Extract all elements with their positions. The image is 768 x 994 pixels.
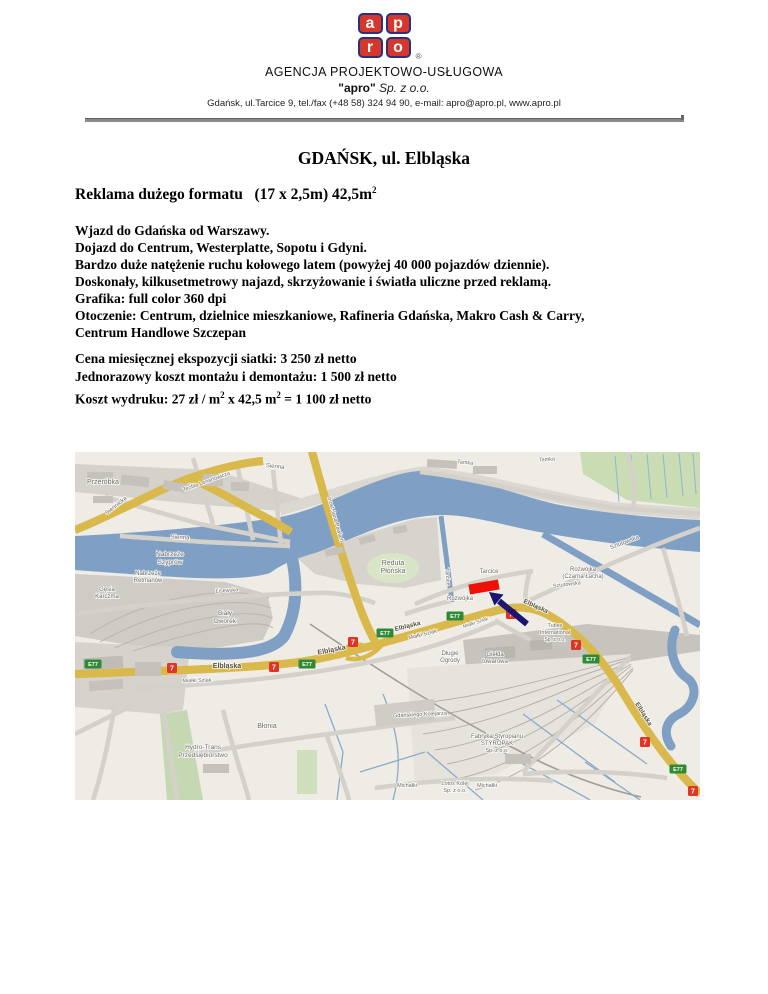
svg-text:7: 7 — [351, 640, 355, 647]
map-label: Nabrzeże — [156, 551, 184, 558]
svg-text:E77: E77 — [302, 662, 312, 668]
map-label: Sienna — [171, 535, 191, 542]
legal-suffix: Sp. z o.o. — [376, 81, 430, 95]
map-label: Nabrzeże — [135, 571, 161, 577]
divider-end-tick — [681, 115, 684, 120]
company-name: AGENCJA PROJEKTOWO-USŁUGOWA — [0, 65, 768, 79]
brand-name: "apro" — [338, 81, 375, 95]
offer-description: Wjazd do Gdańska od Warszawy. Dojazd do … — [75, 222, 584, 341]
route-7-shield: 7 — [640, 737, 650, 747]
map-label: Lotos Kolej — [441, 781, 468, 787]
map-label: Miałki Szlak — [182, 677, 211, 684]
logo-grid: a p r o — [358, 13, 411, 58]
map-label: Sp. z o.o. — [485, 748, 509, 754]
map-label: Tamka — [539, 456, 557, 463]
svg-text:E77: E77 — [586, 657, 596, 663]
header-divider — [85, 118, 684, 122]
body-line: Grafika: full color 360 dpi — [75, 290, 584, 307]
location-map: PrzeróbkaSiennickaTeofila LenartowiczaSi… — [75, 452, 700, 800]
company-legal-name: "apro" Sp. z o.o. — [0, 81, 768, 95]
map-label: Przedsiębiorstwo — [178, 752, 228, 759]
svg-text:7: 7 — [272, 665, 276, 672]
body-line: Centrum Handlowe Szczepan — [75, 324, 584, 341]
logo-letter-o: o — [386, 37, 411, 58]
map-label: Ogrody — [440, 658, 460, 664]
print-price-part: = 1 100 zł netto — [281, 392, 372, 407]
map-label: Szyprów — [158, 559, 183, 566]
map-label: Reduta — [382, 560, 405, 567]
logo-letter-p: p — [386, 13, 411, 34]
map-label: International — [540, 630, 570, 636]
body-line: Doskonały, kilkusetmetrowy najazd, skrzy… — [75, 273, 584, 290]
subtitle-superscript: 2 — [372, 185, 377, 195]
map-label: Fabryka Styropianu — [471, 734, 523, 740]
map-label: Hydro-Trans — [185, 744, 222, 751]
route-7-shield: 7 — [269, 662, 279, 672]
registered-mark: ® — [416, 52, 422, 61]
apro-logo: a p r o ® — [358, 13, 411, 58]
map-label: Gęsia — [99, 587, 115, 593]
route-7-shield: 7 — [571, 640, 581, 650]
route-7-shield: 7 — [167, 663, 177, 673]
map-label: Elbląska — [213, 663, 242, 670]
pricing-block: Cena miesięcznej ekspozycji siatki: 3 25… — [75, 350, 397, 409]
map-label: Rozwójka — [570, 567, 597, 573]
map-label: (Czarna Łacha) — [562, 574, 603, 580]
subtitle-text: Reklama dużego formatu (17 x 2,5m) 42,5m — [75, 186, 372, 203]
map-label: Michałki — [477, 783, 497, 789]
body-line: Dojazd do Centrum, Westerplatte, Sopotu … — [75, 239, 584, 256]
map-label: Przeróbka — [87, 479, 119, 486]
map-label: Giełda — [486, 652, 504, 658]
svg-text:E77: E77 — [380, 631, 390, 637]
map-label: Karczma — [95, 594, 119, 600]
print-price-part: Koszt wydruku: 27 zł / m — [75, 392, 220, 407]
route-e77-shield: E77 — [583, 655, 600, 664]
svg-text:7: 7 — [170, 666, 174, 673]
map-label: Michałki — [397, 783, 417, 789]
company-contact-line: Gdańsk, ul.Tarcice 9, tel./fax (+48 58) … — [0, 98, 768, 109]
map-label: Dworek — [214, 618, 237, 625]
svg-text:E77: E77 — [88, 662, 98, 668]
map-label: Tarcice — [479, 569, 499, 575]
letterhead: a p r o ® AGENCJA PROJEKTOWO-USŁUGOWA "a… — [0, 13, 768, 109]
price-line-mounting: Jednorazowy koszt montażu i demontażu: 1… — [75, 368, 397, 386]
map-label: Tubes — [547, 623, 562, 629]
map-label: Retmanów — [134, 578, 163, 584]
map-label: Sp. z o.o. — [443, 788, 467, 794]
route-e77-shield: E77 — [447, 612, 464, 621]
price-line-exposure: Cena miesięcznej ekspozycji siatki: 3 25… — [75, 350, 397, 368]
body-line: Wjazd do Gdańska od Warszawy. — [75, 222, 584, 239]
map-label: Biały — [218, 610, 233, 617]
svg-text:7: 7 — [643, 740, 647, 747]
route-e77-shield: E77 — [85, 660, 102, 669]
map-label: Sp. z o.o. — [544, 637, 565, 643]
svg-text:7: 7 — [691, 789, 695, 796]
body-line: Otoczenie: Centrum, dzielnice mieszkanio… — [75, 307, 584, 324]
document-page: a p r o ® AGENCJA PROJEKTOWO-USŁUGOWA "a… — [0, 0, 768, 994]
route-e77-shield: E77 — [670, 765, 687, 774]
map-label: towarowa — [482, 659, 508, 665]
route-7-shield: 7 — [348, 637, 358, 647]
map-label: Płońska — [381, 568, 406, 575]
map-label: STYROPAK — [481, 741, 513, 747]
page-title: GDAŃSK, ul. Elbląska — [0, 148, 768, 169]
map-label: Długie — [441, 651, 459, 657]
logo-letter-r: r — [358, 37, 383, 58]
svg-text:E77: E77 — [450, 614, 460, 620]
map-label: Błonia — [257, 723, 277, 730]
print-price-part: x 42,5 m — [225, 392, 277, 407]
svg-text:E77: E77 — [673, 767, 683, 773]
body-line: Bardzo duże natężenie ruchu kołowego lat… — [75, 256, 584, 273]
route-e77-shield: E77 — [299, 660, 316, 669]
route-e77-shield: E77 — [377, 629, 394, 638]
offer-subtitle: Reklama dużego formatu (17 x 2,5m) 42,5m… — [75, 185, 377, 204]
logo-letter-a: a — [358, 13, 383, 34]
route-7-shield: 7 — [688, 786, 698, 796]
map-label: Rozwójka — [447, 596, 474, 602]
price-line-print: Koszt wydruku: 27 zł / m2 x 42,5 m2 = 1 … — [75, 386, 397, 409]
svg-text:7: 7 — [574, 643, 578, 650]
